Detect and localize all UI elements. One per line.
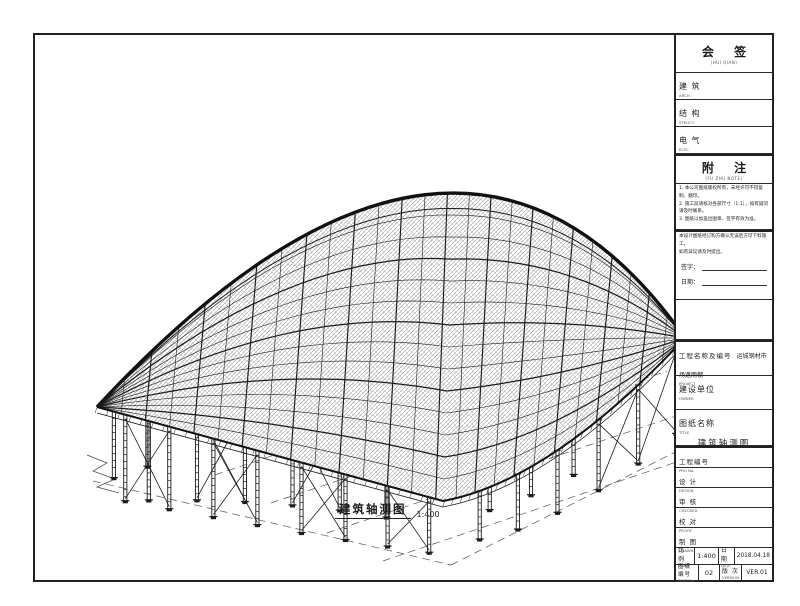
huiqian-sub: (HUI QIAN)	[711, 60, 738, 65]
scale-value: 1:400	[697, 552, 716, 560]
confirm-section: 本设计图纸经订购方确认无误后方可下料施工， 如有异议请及时提出。 签字： 日期：	[676, 230, 772, 300]
date-line: 日期：	[681, 277, 767, 286]
blank-section	[676, 300, 772, 340]
ground-lines	[87, 347, 731, 565]
drawing-caption: 建筑轴测图 1:400	[335, 501, 440, 519]
dwg-no-value-cell: 02	[698, 565, 719, 580]
fuzhu-sub: (FU ZHU NOTE)	[705, 176, 742, 181]
dwg-no-label: 图纸编号	[678, 562, 696, 578]
lattice-column-row-inner-right	[486, 412, 578, 512]
discipline-label: 建 筑	[679, 82, 701, 91]
dwg-title-label: 图纸名称	[679, 419, 715, 428]
title-block: 会 签 (HUI QIAN) 建 筑 ARCH. 结 构 STRUCT. 电 气…	[674, 35, 772, 580]
discipline-label: 电 气	[679, 136, 701, 145]
version-value: VER.01	[744, 569, 770, 576]
date-rule	[702, 278, 767, 286]
notes-section: 1. 本公司图纸版权所有，未经许可不得复制、翻印。 2. 施工前请核对各部尺寸（…	[676, 184, 772, 230]
owner-sub: OWNER	[679, 396, 769, 401]
dwg-title-row: 图纸名称 TITLE 建筑轴测图	[676, 410, 772, 446]
checked-row: 审 核 CHECKED	[676, 488, 772, 508]
huiqian-title: 会 签	[694, 43, 754, 60]
discipline-row-struct: 结 构 STRUCT.	[676, 100, 772, 127]
date-row-label: 日 期	[721, 545, 732, 563]
version-sub: VERSION	[722, 575, 739, 580]
lattice-column-row-right	[476, 347, 680, 541]
lattice-column-row-left-back	[110, 386, 151, 480]
project-row: 工程名称及编号 运城钢材市场遮雨棚 PROJECT	[676, 340, 772, 376]
dwg-no-sub: DWG No.	[678, 578, 696, 583]
drawing-caption-title: 建筑轴测图	[335, 501, 411, 519]
date-label: 日期：	[681, 277, 699, 286]
signature-rule	[702, 263, 767, 271]
version-label: 版 次	[722, 566, 739, 575]
design-row: 设 计 DESIGN	[676, 468, 772, 488]
date-value: 2018.04.18	[737, 553, 770, 559]
project-label: 工程名称及编号	[679, 352, 732, 360]
discipline-row-arch: 建 筑 ARCH.	[676, 73, 772, 100]
lattice-column-row-front	[121, 415, 433, 555]
dwgno-version-row: 图纸编号 DWG No. 02 版 次 VERSION VER.01	[676, 565, 772, 580]
cad-viewer-canvas: 建筑轴测图 1:400 会 签 (HUI QIAN) 建 筑 ARCH. 结 构…	[0, 0, 800, 606]
vault-roof-truss-grid	[95, 193, 685, 507]
confirm-line: 本设计图纸经订购方确认无误后方可下料施工，	[679, 233, 769, 249]
proof-row: 校 对 PROOF	[676, 508, 772, 528]
checked-label: 审 核	[679, 498, 697, 506]
discipline-sub: STRUCT.	[679, 120, 769, 125]
discipline-sub: ELEC.	[679, 147, 769, 152]
dwg-title-sub: TITLE	[679, 430, 769, 435]
note-line: 3. 图纸以加盖出图章、签字有效为准。	[679, 216, 769, 224]
date-value-cell: 2018.04.18	[734, 548, 772, 564]
drawing-sheet: 建筑轴测图 1:400 会 签 (HUI QIAN) 建 筑 ARCH. 结 构…	[33, 33, 774, 582]
scale-value-cell: 1:400	[694, 548, 718, 564]
note-line: 2. 施工前请核对各部尺寸（1:1），如有疑问请及时联系。	[679, 201, 769, 217]
discipline-sub: ARCH.	[679, 93, 769, 98]
dwg-no-value: 02	[701, 569, 717, 577]
scale-label: 比 例	[678, 545, 692, 563]
proof-label: 校 对	[679, 518, 697, 526]
project-no-row: 工程编号 PRO No.	[676, 446, 772, 468]
note-line: 1. 本公司图纸版权所有，未经许可不得复制、翻印。	[679, 185, 769, 201]
project-no-label: 工程编号	[679, 458, 709, 466]
discipline-label: 结 构	[679, 109, 701, 118]
discipline-row-elec: 电 气 ELEC.	[676, 127, 772, 154]
design-label: 设 计	[679, 478, 697, 486]
fuzhu-title: 附 注	[694, 159, 754, 176]
fuzhu-header: 附 注 (FU ZHU NOTE)	[676, 154, 772, 184]
huiqian-header: 会 签 (HUI QIAN)	[676, 35, 772, 73]
version-value-cell: VER.01	[741, 565, 772, 580]
owner-row: 建设单位 OWNER	[676, 376, 772, 410]
date-cell: 日 期 DATE	[718, 548, 734, 564]
drawing-caption-scale: 1:400	[417, 510, 440, 519]
signature-line: 签字：	[681, 262, 767, 271]
dwg-no-cell: 图纸编号 DWG No.	[676, 565, 698, 580]
confirm-line: 如有异议请及时提出。	[679, 249, 769, 257]
version-cell: 版 次 VERSION	[719, 565, 741, 580]
owner-label: 建设单位	[679, 385, 715, 394]
signature-label: 签字：	[681, 262, 699, 271]
